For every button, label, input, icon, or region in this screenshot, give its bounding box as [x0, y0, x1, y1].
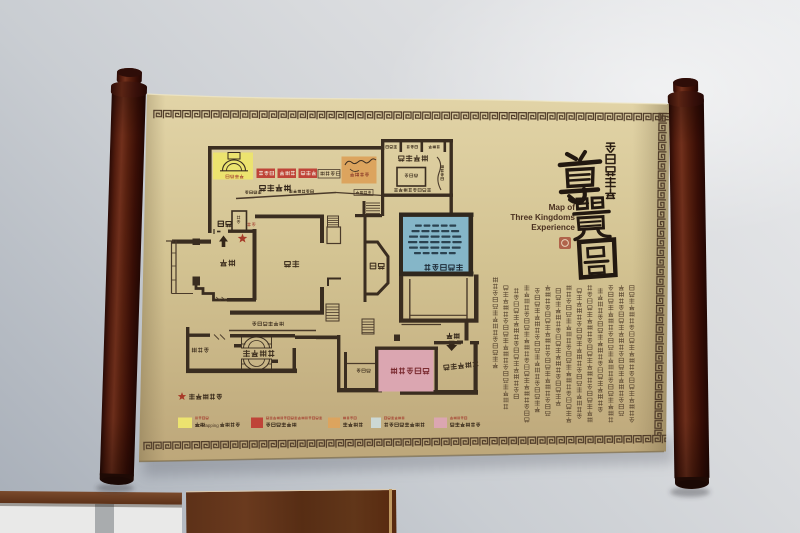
- svg-text:Map of: Map of: [549, 203, 576, 212]
- svg-text:Three Kingdoms: Three Kingdoms: [510, 213, 575, 222]
- svg-text:Experience: Experience: [531, 223, 575, 232]
- svg-text:3D Mapping: 3D Mapping: [195, 423, 219, 428]
